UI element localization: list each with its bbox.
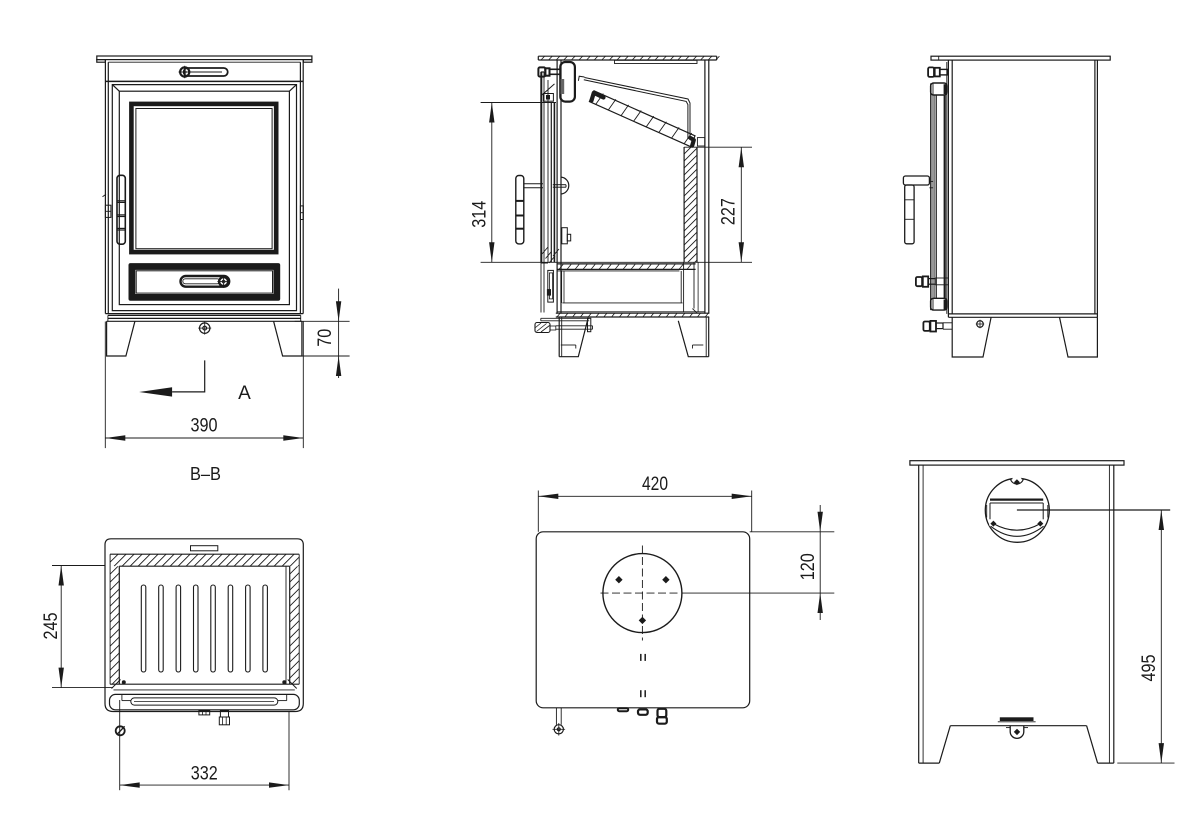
svg-text:495: 495 [1139, 655, 1160, 682]
svg-text:B–B: B–B [190, 464, 221, 484]
svg-text:70: 70 [315, 329, 336, 347]
svg-text:245: 245 [41, 613, 62, 640]
svg-text:420: 420 [642, 474, 668, 495]
svg-text:120: 120 [798, 553, 819, 580]
svg-text:314: 314 [470, 200, 491, 227]
svg-text:332: 332 [191, 764, 218, 785]
svg-text:A: A [238, 383, 251, 404]
svg-text:390: 390 [191, 416, 218, 437]
svg-text:227: 227 [719, 198, 740, 225]
